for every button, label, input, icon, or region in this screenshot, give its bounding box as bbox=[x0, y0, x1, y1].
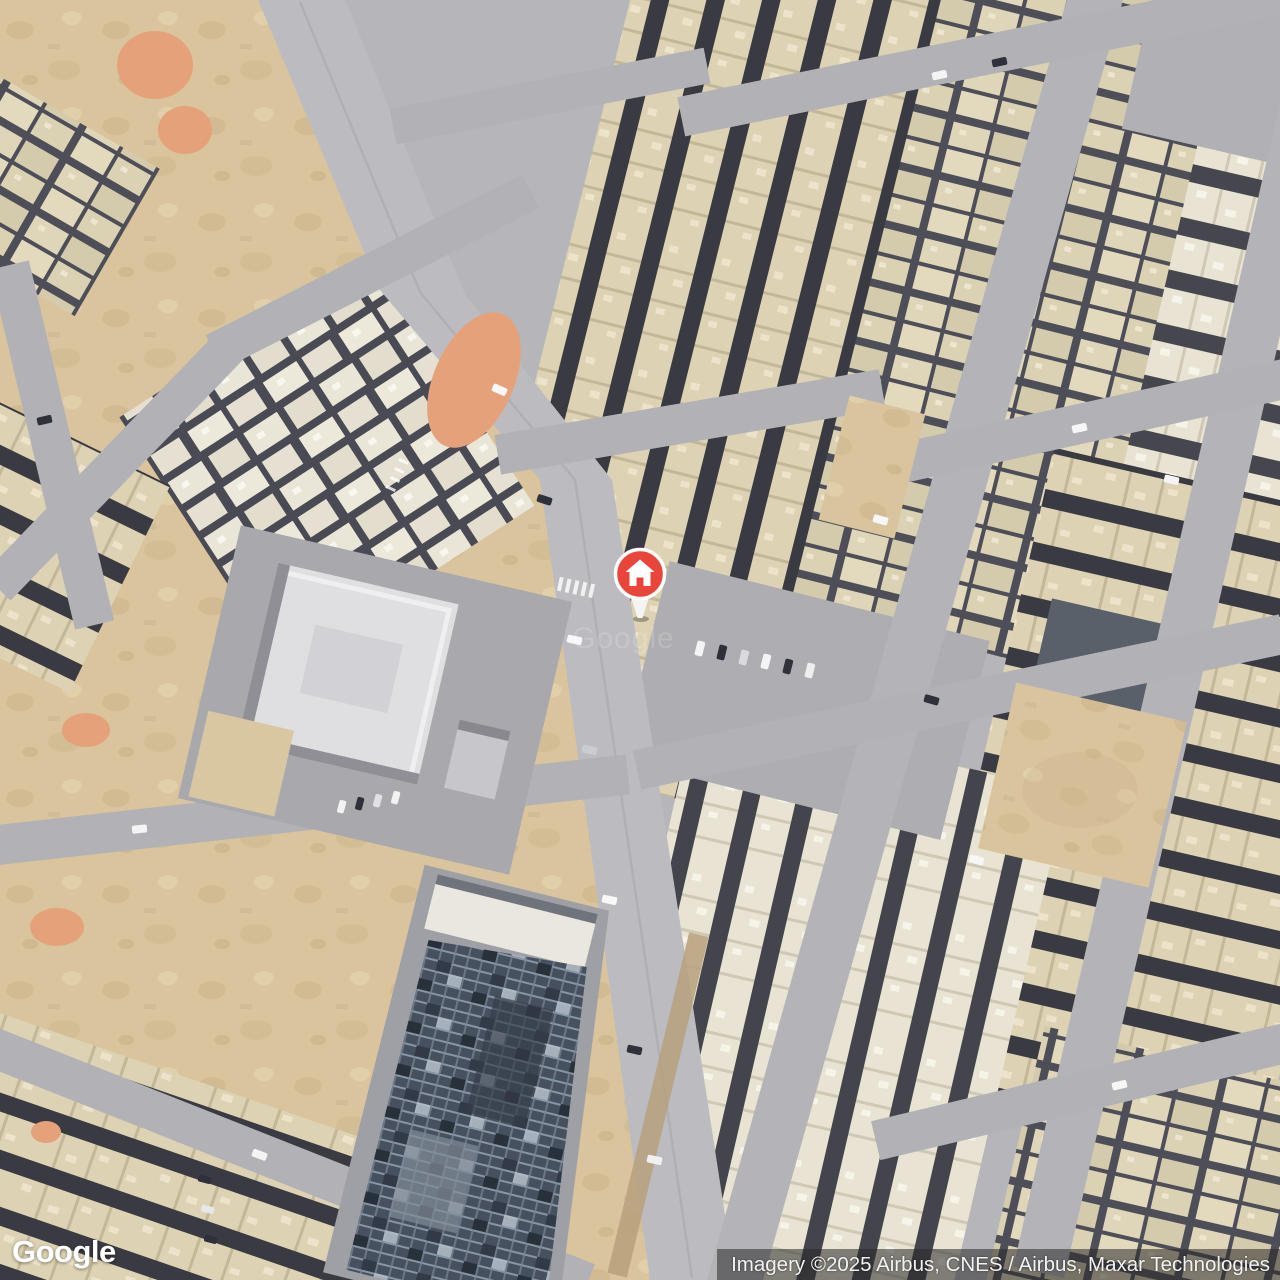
orange-patch bbox=[117, 31, 193, 99]
orange-patch bbox=[30, 908, 84, 946]
map-canvas[interactable]: Google bbox=[0, 0, 1280, 1280]
orange-patch bbox=[62, 713, 110, 747]
map-watermark: Google bbox=[572, 622, 675, 655]
google-logo[interactable]: Google bbox=[12, 1234, 116, 1270]
map-view[interactable]: Google Google Imagery ©2025 Airbus, CNES… bbox=[0, 0, 1280, 1280]
orange-patch bbox=[158, 106, 212, 154]
imagery-attribution: Imagery ©2025 Airbus, CNES / Airbus, Max… bbox=[717, 1249, 1280, 1280]
orange-patch bbox=[31, 1121, 61, 1143]
